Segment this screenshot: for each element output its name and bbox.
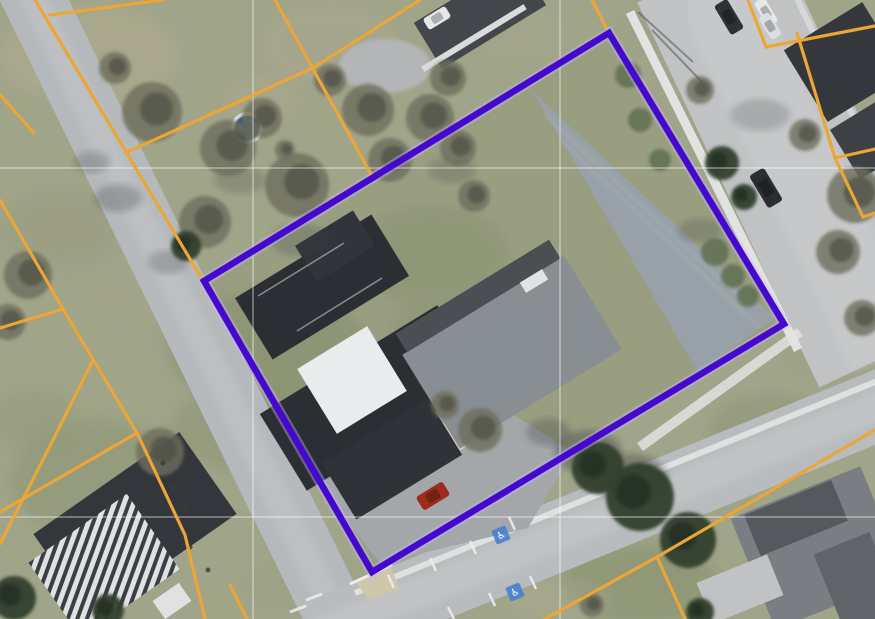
- fence-post: [161, 461, 166, 466]
- conifer-tree-core: [580, 451, 606, 477]
- fence-post: [206, 568, 211, 573]
- aerial-map-view[interactable]: ♿♿: [0, 0, 875, 619]
- bare-tree-core: [799, 125, 817, 143]
- tree-shadow: [74, 151, 110, 173]
- bare-tree-core: [587, 597, 600, 610]
- bare-tree-core: [324, 70, 342, 88]
- bare-tree-core: [358, 93, 387, 122]
- bare-tree-core: [281, 144, 292, 155]
- bare-tree-core: [150, 436, 176, 462]
- bare-tree-core: [471, 416, 495, 440]
- bush: [721, 264, 745, 288]
- bare-tree-core: [109, 58, 127, 76]
- bare-tree-core: [284, 164, 319, 199]
- bare-tree-core: [195, 205, 224, 234]
- bush: [628, 108, 652, 132]
- tree-shadow: [94, 184, 142, 212]
- bare-tree-core: [140, 93, 173, 126]
- bare-tree-core: [439, 396, 454, 411]
- bare-tree-core: [844, 177, 875, 208]
- conifer-tree-core: [710, 152, 727, 169]
- bush: [701, 238, 729, 266]
- tree-shadow: [730, 99, 790, 131]
- conifer-tree-core: [690, 603, 704, 617]
- conifer-tree-core: [97, 600, 113, 616]
- bare-tree-core: [855, 306, 875, 326]
- conifer-tree-core: [735, 189, 748, 202]
- fence-post: [183, 503, 188, 508]
- bare-tree-core: [441, 66, 461, 86]
- conifer-tree-core: [616, 475, 650, 509]
- satellite-map-canvas[interactable]: ♿♿: [0, 0, 875, 619]
- fence-post: [171, 485, 176, 490]
- bush: [737, 285, 759, 307]
- bare-tree-core: [254, 105, 276, 127]
- driveway: [339, 39, 431, 93]
- fence-post: [198, 526, 203, 531]
- bare-tree-core: [694, 81, 709, 96]
- tree-shadow: [526, 418, 570, 446]
- bare-tree-core: [420, 102, 446, 128]
- bare-tree-core: [468, 186, 486, 204]
- bare-tree-core: [451, 136, 471, 156]
- bare-tree-core: [829, 238, 853, 262]
- bare-tree-core: [217, 130, 248, 161]
